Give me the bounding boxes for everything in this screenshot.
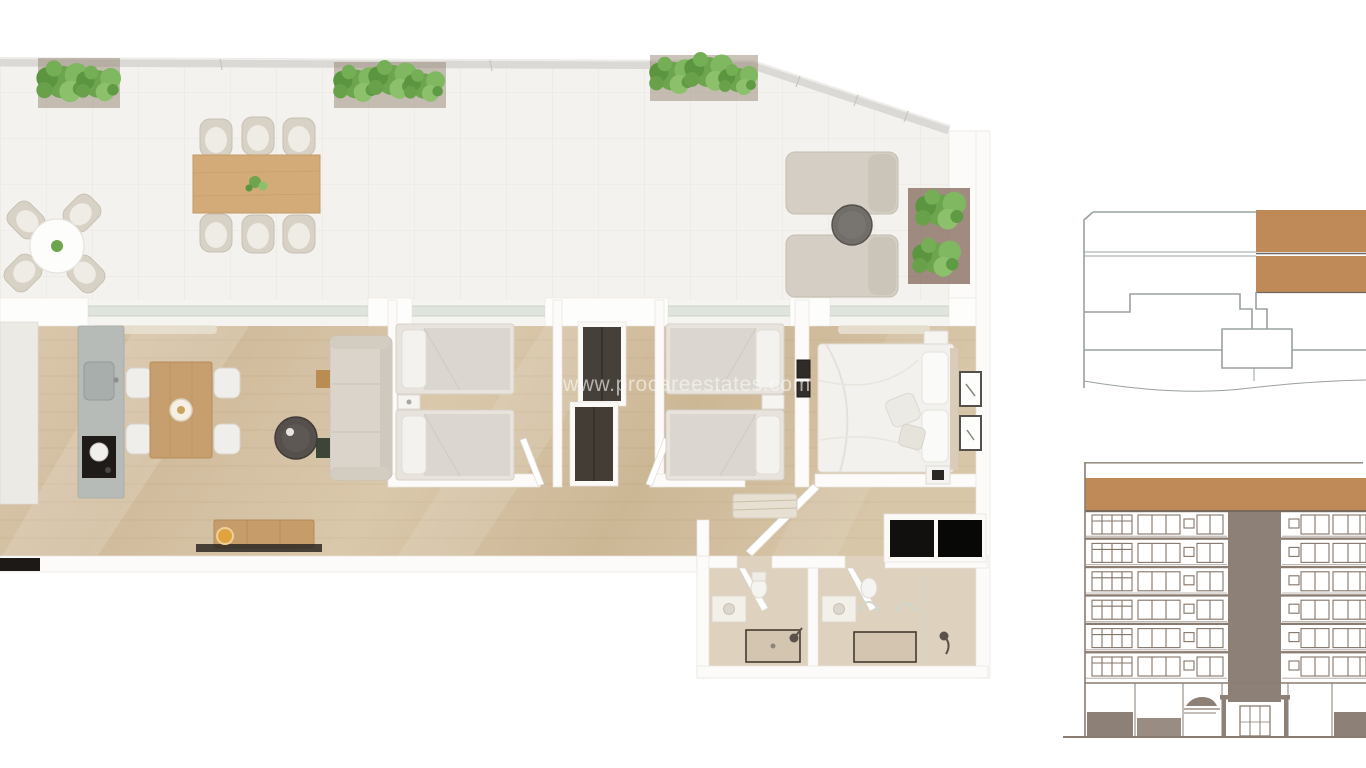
kitchen-left-cabinets: [0, 322, 38, 504]
sofa-side-table-dark: [316, 438, 330, 458]
planter-1: [36, 58, 121, 108]
twin-bed: [396, 410, 514, 480]
basin: [724, 604, 735, 615]
dining-chair: [126, 424, 152, 454]
item-on-nightstand: [932, 470, 944, 480]
entry-dark-strip: [0, 558, 40, 571]
planter-3: [649, 52, 758, 101]
bistro-centerpiece: [51, 240, 63, 252]
master-pillow: [922, 352, 948, 404]
bath-bottom-wall: [697, 666, 988, 678]
basin: [834, 604, 845, 615]
elevation-drawing: [1063, 462, 1366, 738]
ground-line: [1063, 736, 1366, 738]
twin-bed: [666, 410, 784, 480]
elevation-top-line: [1085, 462, 1363, 464]
nightstand: [924, 331, 948, 344]
key-plan-highlight-upper: [1256, 210, 1366, 252]
table-lamp: [217, 528, 233, 544]
shower-tray: [854, 632, 916, 662]
toilet: [861, 578, 877, 598]
nightstand: [762, 395, 784, 409]
sink-faucet: [113, 377, 118, 382]
closet-strip: [570, 322, 626, 486]
twin-bed: [396, 324, 514, 394]
wall-master-bottom: [815, 474, 988, 487]
bath-divider-wall: [808, 568, 818, 676]
kitchen-sink: [84, 362, 114, 400]
master-pillow: [922, 410, 948, 462]
floorplan-svg: www.procareestates.com: [0, 0, 1366, 768]
key-plan: [1084, 210, 1366, 391]
sofa-side-table-wood: [316, 370, 330, 388]
dining-chair: [214, 424, 240, 454]
cup-on-table: [286, 428, 294, 436]
sideboard-shadow: [196, 544, 322, 552]
cooktop-knob: [105, 467, 111, 473]
terrace: [0, 52, 988, 302]
elevation-roof-band: [1085, 478, 1366, 512]
elevation-ground-floor: [1063, 683, 1366, 738]
terrace-dining-set: [193, 117, 320, 253]
dining-chair: [214, 368, 240, 398]
hall-wardrobe-black: [884, 514, 986, 562]
floorplan-image: www.procareestates.com: [0, 0, 1366, 768]
bath-top-wall-b: [772, 556, 845, 568]
headboard: [950, 348, 958, 470]
bath-west-wall: [697, 556, 709, 678]
key-plan-highlight-lower: [1256, 256, 1366, 292]
planter-4-vertical: [908, 188, 970, 284]
master-bedroom: [818, 331, 981, 484]
entry-bench: [733, 494, 797, 518]
planter-2: [333, 60, 446, 108]
dining-chair: [126, 368, 152, 398]
elevation-core-column: [1228, 512, 1281, 702]
pot-on-cooktop: [90, 443, 108, 461]
watermark-text: www.procareestates.com: [562, 373, 811, 396]
wall-south-living: [0, 556, 700, 572]
wall-bedroom1-closet: [553, 300, 562, 487]
car-glyph: [1184, 697, 1220, 713]
